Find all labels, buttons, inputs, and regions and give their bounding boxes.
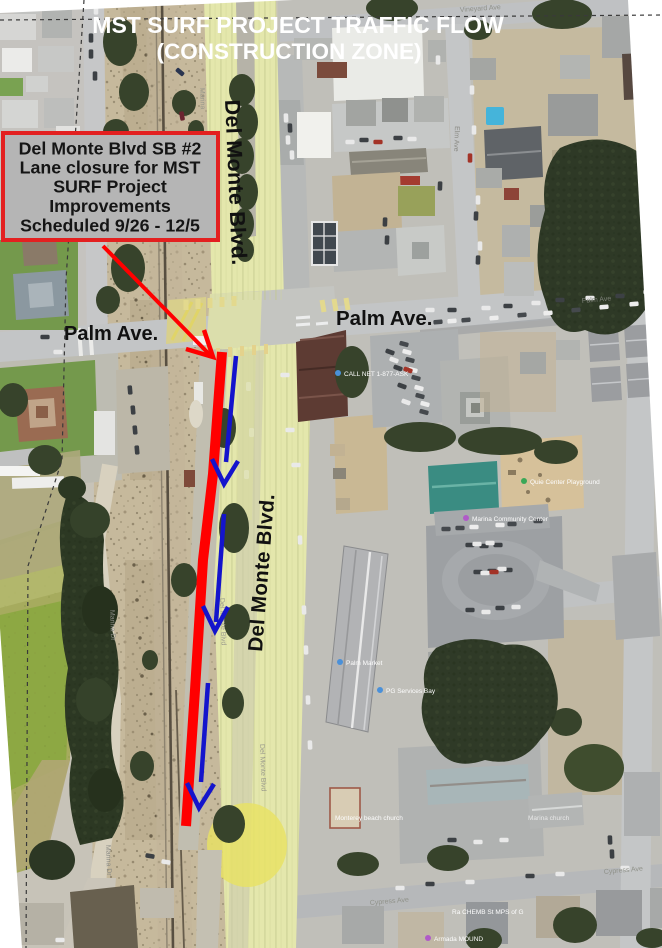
svg-text:Del Monte Blvd SB #2: Del Monte Blvd SB #2 — [19, 139, 202, 159]
svg-text:Armada MOUND: Armada MOUND — [434, 936, 483, 943]
svg-text:Marina Community Center: Marina Community Center — [472, 516, 549, 523]
svg-text:MST SURF PROJECT TRAFFIC FLOW: MST SURF PROJECT TRAFFIC FLOW — [92, 12, 504, 38]
svg-text:Ra CHEMB St MPS of G: Ra CHEMB St MPS of G — [452, 909, 524, 916]
svg-text:CALL NET 1-877-ASK: CALL NET 1-877-ASK — [344, 371, 409, 378]
svg-text:PG Services Bay: PG Services Bay — [386, 688, 436, 695]
svg-text:Scheduled 9/26 - 12/5: Scheduled 9/26 - 12/5 — [20, 216, 200, 236]
svg-text:Quie Center Playground: Quie Center Playground — [530, 479, 600, 486]
svg-text:Marina Dr: Marina Dr — [104, 845, 112, 877]
svg-text:Marina: Marina — [198, 88, 206, 110]
svg-text:SURF Project: SURF Project — [53, 177, 167, 197]
svg-text:Palm Ave.: Palm Ave. — [336, 307, 432, 330]
svg-text:Lane closure for MST: Lane closure for MST — [20, 157, 201, 177]
svg-text:(CONSTRUCTION ZONE): (CONSTRUCTION ZONE) — [157, 39, 422, 64]
svg-text:Elm Ave: Elm Ave — [452, 126, 460, 152]
svg-text:Improvements: Improvements — [49, 196, 171, 216]
svg-text:Marina Dr: Marina Dr — [108, 610, 116, 642]
svg-text:Monterey beach church: Monterey beach church — [335, 815, 403, 822]
svg-text:Palm Ave.: Palm Ave. — [64, 323, 158, 345]
svg-text:Palm Market: Palm Market — [346, 660, 383, 667]
svg-text:Marina church: Marina church — [528, 815, 570, 822]
